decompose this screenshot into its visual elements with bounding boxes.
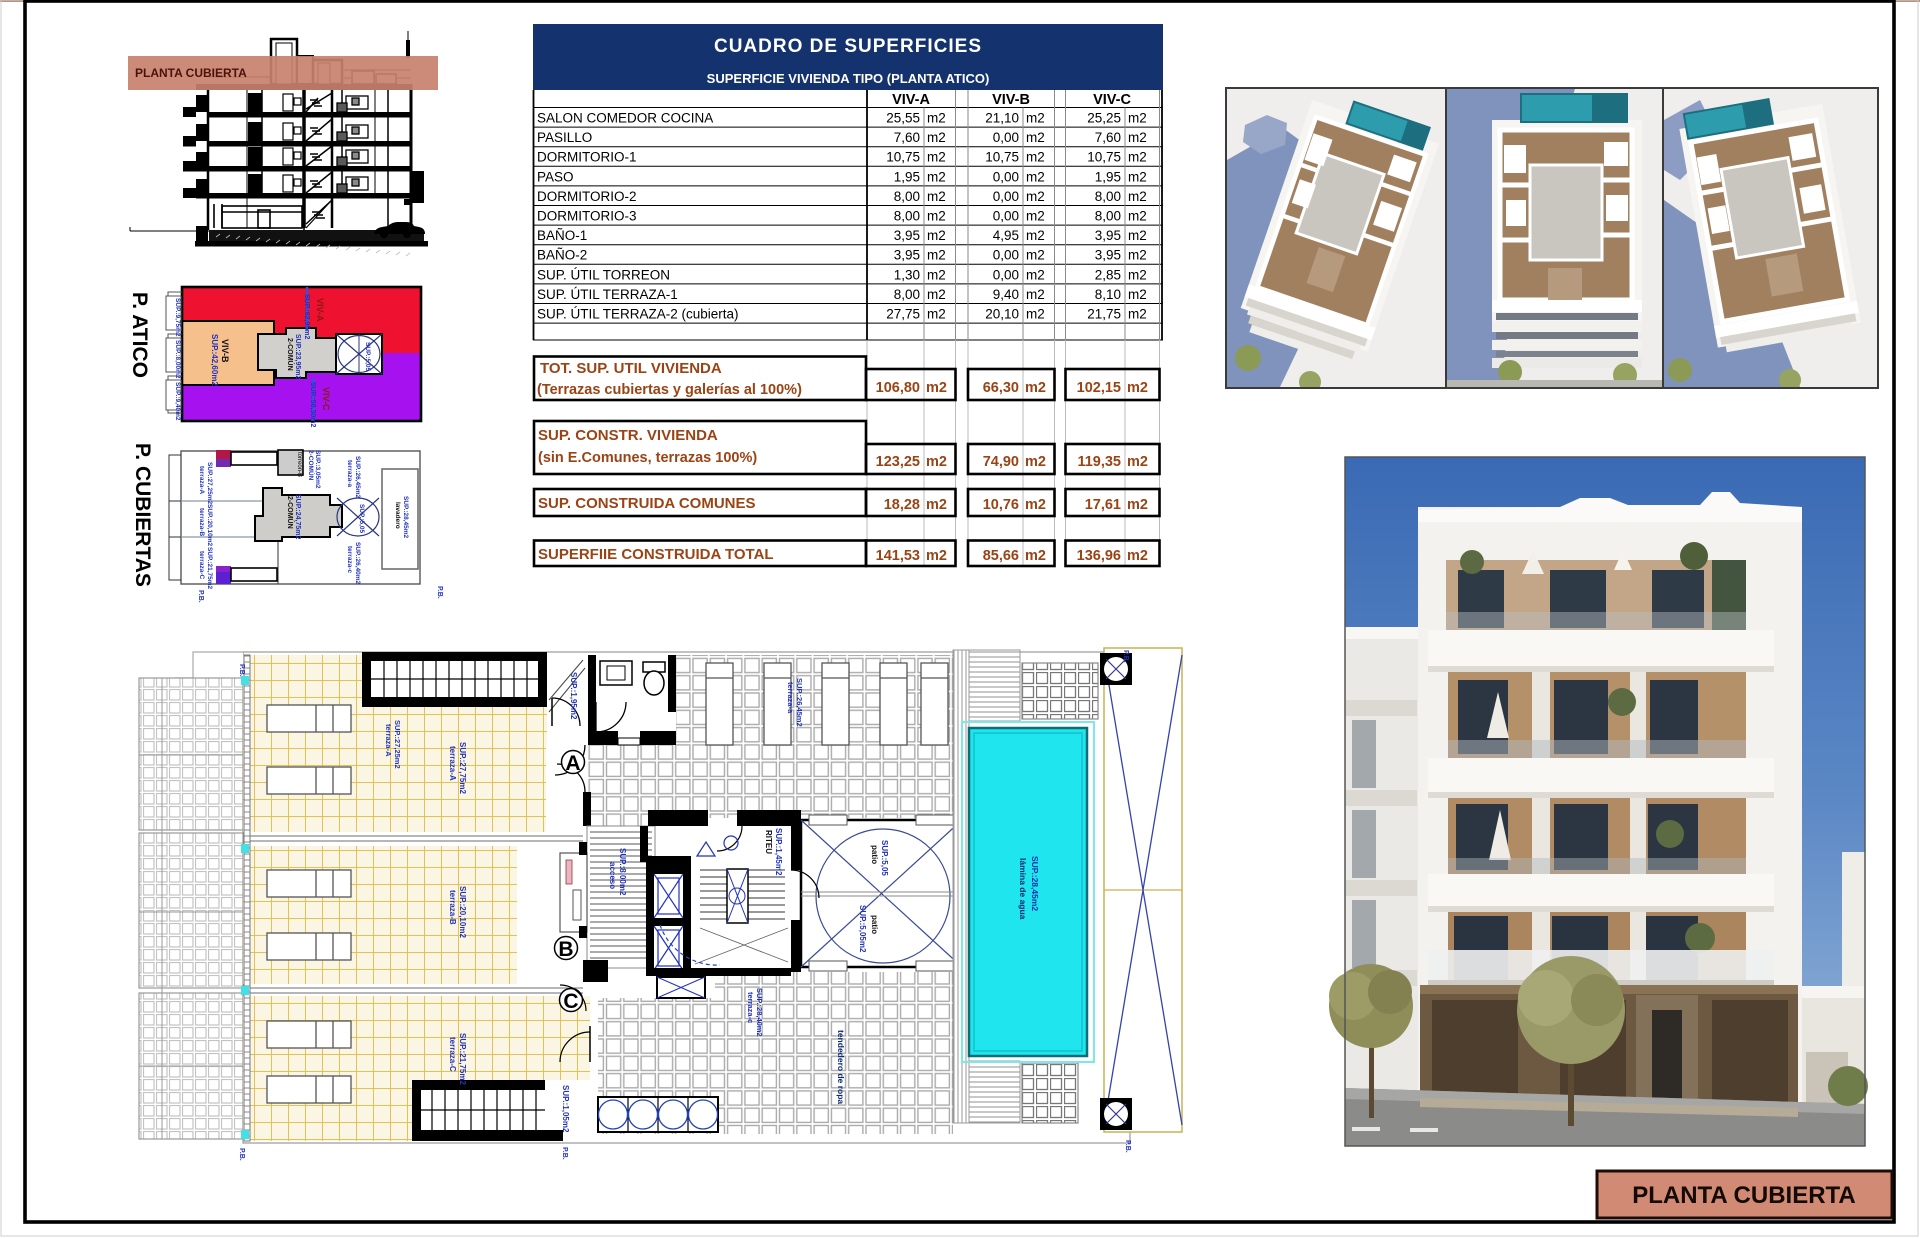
svg-text:SUPERFICIE VIVIENDA TIPO (PLA: SUPERFICIE VIVIENDA TIPO (PLANTA ATICO)	[707, 71, 990, 86]
svg-text:119,35: 119,35	[1077, 454, 1121, 470]
svg-text:SUP.:28,45m2: SUP.:28,45m2	[402, 496, 409, 539]
svg-text:P.B.: P.B.	[197, 590, 204, 603]
svg-text:DORMITORIO-2: DORMITORIO-2	[537, 189, 637, 204]
svg-text:m2: m2	[927, 150, 946, 165]
svg-text:SUP.:27,25m2: SUP.:27,25m2	[393, 720, 402, 769]
svg-text:m2: m2	[926, 380, 947, 396]
svg-text:SUP.:9,40m2: SUP.:9,40m2	[174, 382, 181, 421]
svg-text:SUP.:26,45m2: SUP.:26,45m2	[354, 456, 361, 499]
svg-text:m2: m2	[927, 189, 946, 204]
svg-text:m2: m2	[1026, 267, 1045, 282]
svg-text:4,95: 4,95	[993, 228, 1019, 243]
svg-text:VIV-C: VIV-C	[321, 387, 331, 411]
svg-text:7,60: 7,60	[894, 130, 920, 145]
svg-text:B: B	[558, 938, 573, 961]
svg-text:m2: m2	[927, 307, 946, 322]
svg-text:1,95: 1,95	[1095, 169, 1121, 184]
svg-text:m2: m2	[1127, 497, 1148, 513]
svg-text:terraza-B: terraza-B	[198, 508, 205, 536]
svg-text:m2: m2	[1026, 130, 1045, 145]
svg-text:m2: m2	[1025, 380, 1046, 396]
svg-text:VIV-C: VIV-C	[1093, 92, 1131, 108]
svg-text:m2: m2	[1128, 228, 1147, 243]
svg-text:BAÑO-2: BAÑO-2	[537, 248, 587, 263]
svg-text:SUP.:21,75m2: SUP.:21,75m2	[206, 547, 213, 590]
svg-text:85,66: 85,66	[983, 548, 1019, 564]
svg-text:SUP.:28,45m2: SUP.:28,45m2	[1030, 856, 1040, 911]
svg-text:terraza-A: terraza-A	[384, 724, 393, 757]
svg-text:SUP.:9,75m2: SUP.:9,75m2	[174, 298, 181, 337]
svg-text:SUP. ÚTIL TERRAZA-2 (cubierta): SUP. ÚTIL TERRAZA-2 (cubierta)	[537, 307, 739, 322]
svg-text:SUP.:20,10m2: SUP.:20,10m2	[206, 504, 213, 547]
svg-text:terraza-B: terraza-B	[448, 890, 457, 925]
svg-text:0,00: 0,00	[993, 130, 1019, 145]
svg-text:8,00: 8,00	[1095, 189, 1121, 204]
svg-text:C: C	[563, 990, 578, 1013]
svg-text:lavadero: lavadero	[394, 502, 401, 529]
svg-text:21,75: 21,75	[1087, 307, 1121, 322]
svg-text:10,75: 10,75	[1087, 150, 1121, 165]
svg-text:SUP.:58,30m2: SUP.:58,30m2	[309, 382, 316, 428]
svg-text:m2: m2	[1025, 548, 1046, 564]
svg-text:SUP.:62,95m2: SUP.:62,95m2	[303, 294, 310, 340]
svg-text:7,60: 7,60	[1095, 130, 1121, 145]
svg-text:17,61: 17,61	[1085, 497, 1121, 513]
svg-text:m2: m2	[1128, 189, 1147, 204]
svg-text:21,10: 21,10	[985, 111, 1019, 126]
svg-text:SUP. ÚTIL TORREON: SUP. ÚTIL TORREON	[537, 267, 670, 282]
svg-text:SUP.:23,95m2: SUP.:23,95m2	[294, 334, 301, 380]
svg-text:P.B.: P.B.	[238, 1148, 245, 1161]
svg-text:2-COMÚN: 2-COMÚN	[286, 496, 295, 529]
svg-text:10,75: 10,75	[985, 150, 1019, 165]
svg-text:VIV-B: VIV-B	[220, 339, 230, 363]
svg-text:(sin E.Comunes, terrazas 100%): (sin E.Comunes, terrazas 100%)	[538, 450, 757, 466]
svg-text:27,75: 27,75	[886, 307, 920, 322]
svg-text:lámina de agua: lámina de agua	[1018, 858, 1028, 920]
svg-text:3,95: 3,95	[1095, 228, 1121, 243]
svg-text:m2: m2	[926, 497, 947, 513]
svg-text:m2: m2	[1025, 497, 1046, 513]
svg-text:123,25: 123,25	[876, 454, 920, 470]
svg-text:3,95: 3,95	[894, 228, 920, 243]
svg-text:3,95: 3,95	[894, 248, 920, 263]
svg-text:m2: m2	[1128, 287, 1147, 302]
svg-text:m2: m2	[1128, 150, 1147, 165]
svg-text:SUP.:5,05m2: SUP.:5,05m2	[858, 905, 867, 953]
svg-text:P.B.: P.B.	[561, 1147, 568, 1160]
svg-text:SUPERFIIE CONSTRUIDA TOTAL: SUPERFIIE CONSTRUIDA TOTAL	[538, 546, 774, 563]
svg-text:SUP.:8,00m2: SUP.:8,00m2	[618, 848, 627, 896]
svg-text:9,40: 9,40	[993, 287, 1019, 302]
svg-text:0,00: 0,00	[993, 189, 1019, 204]
svg-text:0,00: 0,00	[993, 209, 1019, 224]
svg-text:74,90: 74,90	[983, 454, 1019, 470]
svg-text:terraza-A: terraza-A	[448, 746, 457, 781]
svg-text:m2: m2	[1127, 380, 1148, 396]
svg-text:SUP.:27,25m2: SUP.:27,25m2	[206, 462, 213, 505]
svg-text:m2: m2	[1026, 169, 1045, 184]
svg-text:0,00: 0,00	[993, 248, 1019, 263]
svg-text:SUP. CONSTRUIDA COMUNES: SUP. CONSTRUIDA COMUNES	[538, 495, 756, 512]
svg-text:PLANTA CUBIERTA: PLANTA CUBIERTA	[135, 66, 247, 80]
svg-text:terraza-a: terraza-a	[346, 460, 353, 487]
svg-text:106,80: 106,80	[876, 380, 920, 396]
svg-text:SALON COMEDOR COCINA: SALON COMEDOR COCINA	[537, 111, 713, 126]
svg-text:2,85: 2,85	[1095, 267, 1121, 282]
svg-text:m2: m2	[926, 548, 947, 564]
svg-text:SUP.:1,05m2: SUP.:1,05m2	[561, 1085, 570, 1133]
svg-text:m2: m2	[1128, 130, 1147, 145]
svg-text:SUP. ÚTIL TERRAZA-1: SUP. ÚTIL TERRAZA-1	[537, 287, 678, 302]
svg-text:m2: m2	[1128, 111, 1147, 126]
svg-text:10,75: 10,75	[886, 150, 920, 165]
svg-text:m2: m2	[1127, 454, 1148, 470]
svg-text:m2: m2	[1128, 307, 1147, 322]
svg-text:PASILLO: PASILLO	[537, 130, 592, 145]
svg-text:PASO: PASO	[537, 169, 574, 184]
svg-text:SUP.:28,40m2: SUP.:28,40m2	[755, 988, 764, 1037]
svg-text:m2: m2	[927, 130, 946, 145]
svg-text:10,76: 10,76	[983, 497, 1019, 513]
svg-text:P.B.: P.B.	[1124, 1140, 1131, 1153]
svg-text:SUP.:5,05: SUP.:5,05	[880, 840, 889, 876]
svg-text:m2: m2	[1025, 454, 1046, 470]
svg-text:0,00: 0,00	[993, 267, 1019, 282]
svg-text:patio: patio	[870, 915, 879, 934]
svg-text:66,30: 66,30	[983, 380, 1019, 396]
svg-text:VIV-B: VIV-B	[992, 92, 1030, 108]
svg-text:P.B.: P.B.	[238, 664, 245, 677]
svg-text:SUP.:26,45m2: SUP.:26,45m2	[795, 678, 804, 727]
svg-text:m2: m2	[927, 287, 946, 302]
svg-text:8,00: 8,00	[894, 287, 920, 302]
svg-text:m2: m2	[927, 169, 946, 184]
svg-text:20,10: 20,10	[985, 307, 1019, 322]
svg-text:m2: m2	[1128, 169, 1147, 184]
svg-text:8,00: 8,00	[1095, 209, 1121, 224]
svg-text:3,95: 3,95	[1095, 248, 1121, 263]
svg-text:RITEU: RITEU	[764, 830, 773, 854]
svg-text:terraza-A: terraza-A	[198, 466, 205, 494]
svg-text:m2: m2	[1026, 228, 1045, 243]
svg-text:m2: m2	[1128, 248, 1147, 263]
svg-text:m2: m2	[1026, 248, 1045, 263]
svg-text:SUP.:3,05m2: SUP.:3,05m2	[314, 450, 321, 489]
svg-text:P.B.: P.B.	[436, 586, 443, 599]
svg-text:terraza-C: terraza-C	[198, 551, 205, 579]
svg-text:VIV-A: VIV-A	[315, 298, 325, 322]
svg-text:m2: m2	[927, 209, 946, 224]
svg-text:terraza-c: terraza-c	[746, 992, 755, 1023]
svg-text:25,25: 25,25	[1087, 111, 1121, 126]
svg-text:m2: m2	[1026, 111, 1045, 126]
svg-text:m2: m2	[927, 111, 946, 126]
svg-text:P.B.: P.B.	[1122, 650, 1129, 663]
svg-text:P. CUBIERTAS: P. CUBIERTAS	[131, 443, 154, 587]
svg-text:SUP. CONSTR. VIVIENDA: SUP. CONSTR. VIVIENDA	[538, 427, 718, 444]
svg-text:TOT. SUP. UTIL VIVIENDA: TOT. SUP. UTIL VIVIENDA	[540, 360, 722, 377]
svg-text:m2: m2	[1128, 209, 1147, 224]
svg-text:patio: patio	[870, 845, 879, 864]
svg-text:terraza-c: terraza-c	[346, 546, 353, 573]
svg-text:P. ATICO: P. ATICO	[128, 292, 151, 378]
svg-text:m2: m2	[926, 454, 947, 470]
svg-text:m2: m2	[1127, 548, 1148, 564]
svg-text:torreón-B: torreón-B	[296, 452, 302, 477]
svg-text:136,96: 136,96	[1077, 548, 1121, 564]
svg-text:CUADRO DE SUPERFICIES: CUADRO DE SUPERFICIES	[714, 36, 982, 57]
svg-text:tendedero de ropa: tendedero de ropa	[836, 1030, 846, 1104]
svg-text:8,00: 8,00	[894, 189, 920, 204]
svg-text:acceso: acceso	[608, 862, 617, 889]
svg-text:SUP.:42,60m2: SUP.:42,60m2	[210, 334, 219, 386]
svg-text:SUP.:27,75m2: SUP.:27,75m2	[458, 742, 467, 794]
svg-text:25,55: 25,55	[886, 111, 920, 126]
svg-text:1,95: 1,95	[894, 169, 920, 184]
svg-text:m2: m2	[1026, 307, 1045, 322]
svg-text:SUP.:1,45m2: SUP.:1,45m2	[774, 828, 783, 876]
svg-text:2-COMÚN: 2-COMÚN	[286, 338, 295, 371]
svg-text:SUP.:26,40m2: SUP.:26,40m2	[354, 542, 361, 585]
svg-text:m2: m2	[1026, 209, 1045, 224]
svg-text:SUP.:24,75m2: SUP.:24,75m2	[294, 494, 301, 540]
svg-text:0,00: 0,00	[993, 169, 1019, 184]
svg-text:141,53: 141,53	[876, 548, 920, 564]
svg-text:18,28: 18,28	[884, 497, 920, 513]
svg-text:terraza-C: terraza-C	[448, 1037, 457, 1072]
svg-text:m2: m2	[927, 228, 946, 243]
svg-text:DORMITORIO-3: DORMITORIO-3	[537, 209, 637, 224]
svg-text:SUP.:21,75m2: SUP.:21,75m2	[458, 1033, 467, 1085]
svg-text:SUP.:5,05: SUP.:5,05	[364, 342, 371, 372]
svg-text:SUP.:8,00m2: SUP.:8,00m2	[174, 340, 181, 379]
svg-text:SUP.:20,10m2: SUP.:20,10m2	[458, 886, 467, 938]
svg-text:SUP.:5,05: SUP.:5,05	[358, 504, 365, 534]
svg-text:m2: m2	[1026, 150, 1045, 165]
svg-text:SUP.:1,95m2: SUP.:1,95m2	[569, 672, 578, 720]
svg-text:m2: m2	[1026, 287, 1045, 302]
svg-text:BAÑO-1: BAÑO-1	[537, 228, 587, 243]
svg-text:m2: m2	[1026, 189, 1045, 204]
svg-text:VIV-A: VIV-A	[892, 92, 930, 108]
svg-text:A: A	[565, 752, 580, 775]
svg-text:1,30: 1,30	[894, 267, 920, 282]
svg-text:m2: m2	[1128, 267, 1147, 282]
svg-text:(Terrazas cubiertas y galerías: (Terrazas cubiertas y galerías al 100%)	[537, 382, 802, 398]
svg-text:DORMITORIO-1: DORMITORIO-1	[537, 150, 637, 165]
svg-text:102,15: 102,15	[1077, 380, 1121, 396]
svg-text:8,10: 8,10	[1095, 287, 1121, 302]
svg-text:PLANTA CUBIERTA: PLANTA CUBIERTA	[1632, 1182, 1856, 1209]
svg-text:terraza-a: terraza-a	[786, 682, 795, 714]
svg-text:8,00: 8,00	[894, 209, 920, 224]
svg-text:m2: m2	[927, 248, 946, 263]
svg-text:m2: m2	[927, 267, 946, 282]
